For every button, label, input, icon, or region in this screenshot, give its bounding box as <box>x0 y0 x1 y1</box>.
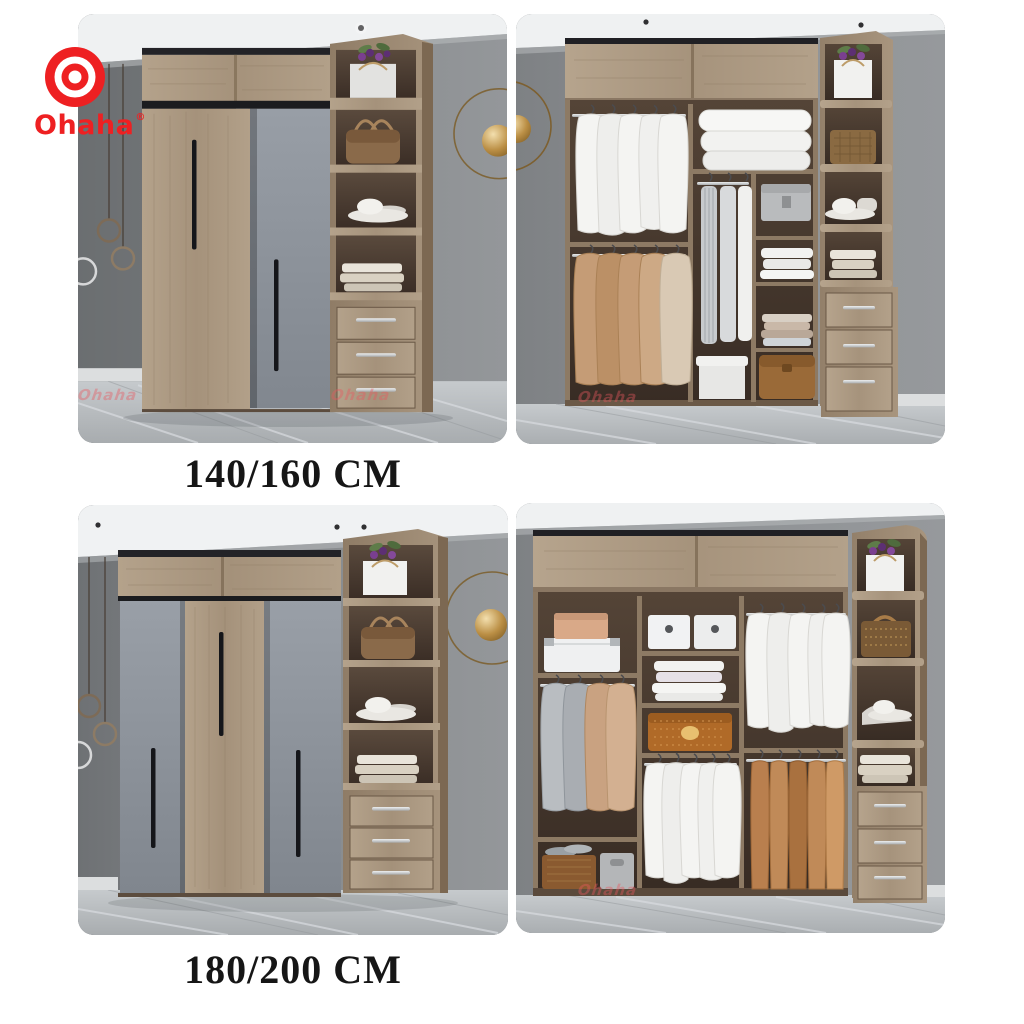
drawer-handle <box>372 807 410 811</box>
brand-name: Ohaha® <box>34 110 146 141</box>
drawer-unit <box>853 786 927 903</box>
closed-wardrobe <box>142 34 433 412</box>
door-handle <box>192 140 197 250</box>
top-cabinet <box>118 557 341 600</box>
baseboard <box>78 368 142 381</box>
baseboard <box>927 885 945 897</box>
drawer-handle <box>372 871 410 875</box>
hanging-shirts-upper <box>746 603 850 732</box>
sliding-door-grey-left <box>120 601 188 893</box>
door-handle <box>296 750 301 857</box>
baseboard <box>78 877 118 890</box>
folded-towels <box>652 661 726 701</box>
page: { "brand": { "name": "Ohaha", "registere… <box>0 0 1024 1024</box>
drawer-handle <box>843 344 875 347</box>
folded-towels <box>760 248 814 279</box>
photo-closed-wardrobe-180 <box>78 505 508 935</box>
hanging-shirts <box>576 105 688 235</box>
registered-mark: ® <box>135 112 146 123</box>
baseboard <box>898 394 945 406</box>
brand-logo: Ohaha® <box>0 0 170 160</box>
patterned-chest <box>648 713 732 751</box>
gift-bag-with-flowers <box>866 538 904 591</box>
hanging-coats <box>541 675 636 811</box>
drawer-handle <box>372 839 410 843</box>
gift-bag-with-flowers <box>834 43 872 98</box>
drawer-unit <box>330 300 422 412</box>
closed-wardrobe <box>118 529 448 897</box>
patterned-basket <box>861 617 911 657</box>
pillows <box>699 110 811 170</box>
storage-box-grey <box>761 184 811 221</box>
drawer-handle <box>356 353 396 357</box>
folded-clothes <box>829 250 877 278</box>
drawer-unit <box>343 790 440 893</box>
open-wardrobe <box>565 31 898 417</box>
door-handle <box>219 632 224 736</box>
photo-open-wardrobe-140: Ohaha <box>516 14 945 444</box>
door-handle <box>274 259 279 371</box>
sliding-door-grey-right <box>262 601 341 893</box>
drawer-handle <box>874 876 906 879</box>
drawer-handle <box>356 318 396 322</box>
open-wardrobe <box>533 525 927 903</box>
top-cabinet <box>533 536 848 589</box>
folded-clothes <box>355 755 419 783</box>
bullseye-logo-icon <box>43 45 107 109</box>
hanging-coats <box>574 245 692 385</box>
wicker-basket <box>830 130 876 164</box>
drawer-handle <box>843 380 875 383</box>
hanging-trousers <box>701 173 752 344</box>
size-label-140-160: 140/160 CM <box>78 450 508 497</box>
drawer-handle <box>874 804 906 807</box>
drawer-handle <box>356 388 396 392</box>
drawer-unit <box>821 287 898 417</box>
size-label-180-200: 180/200 CM <box>78 946 508 993</box>
drawer-handle <box>843 306 875 309</box>
hanging-rod <box>697 182 749 185</box>
folded-clothes-stack <box>761 314 813 346</box>
photo-open-wardrobe-180: Ohaha <box>516 503 945 933</box>
door-handle <box>151 748 156 848</box>
folded-clothes <box>340 263 404 291</box>
leather-box <box>759 355 815 399</box>
hanging-shirts-lower <box>644 753 741 883</box>
storage-box-white <box>696 356 748 399</box>
folded-clothes <box>858 755 912 783</box>
drawer-handle <box>874 841 906 844</box>
hanging-trousers-tan <box>751 750 844 889</box>
